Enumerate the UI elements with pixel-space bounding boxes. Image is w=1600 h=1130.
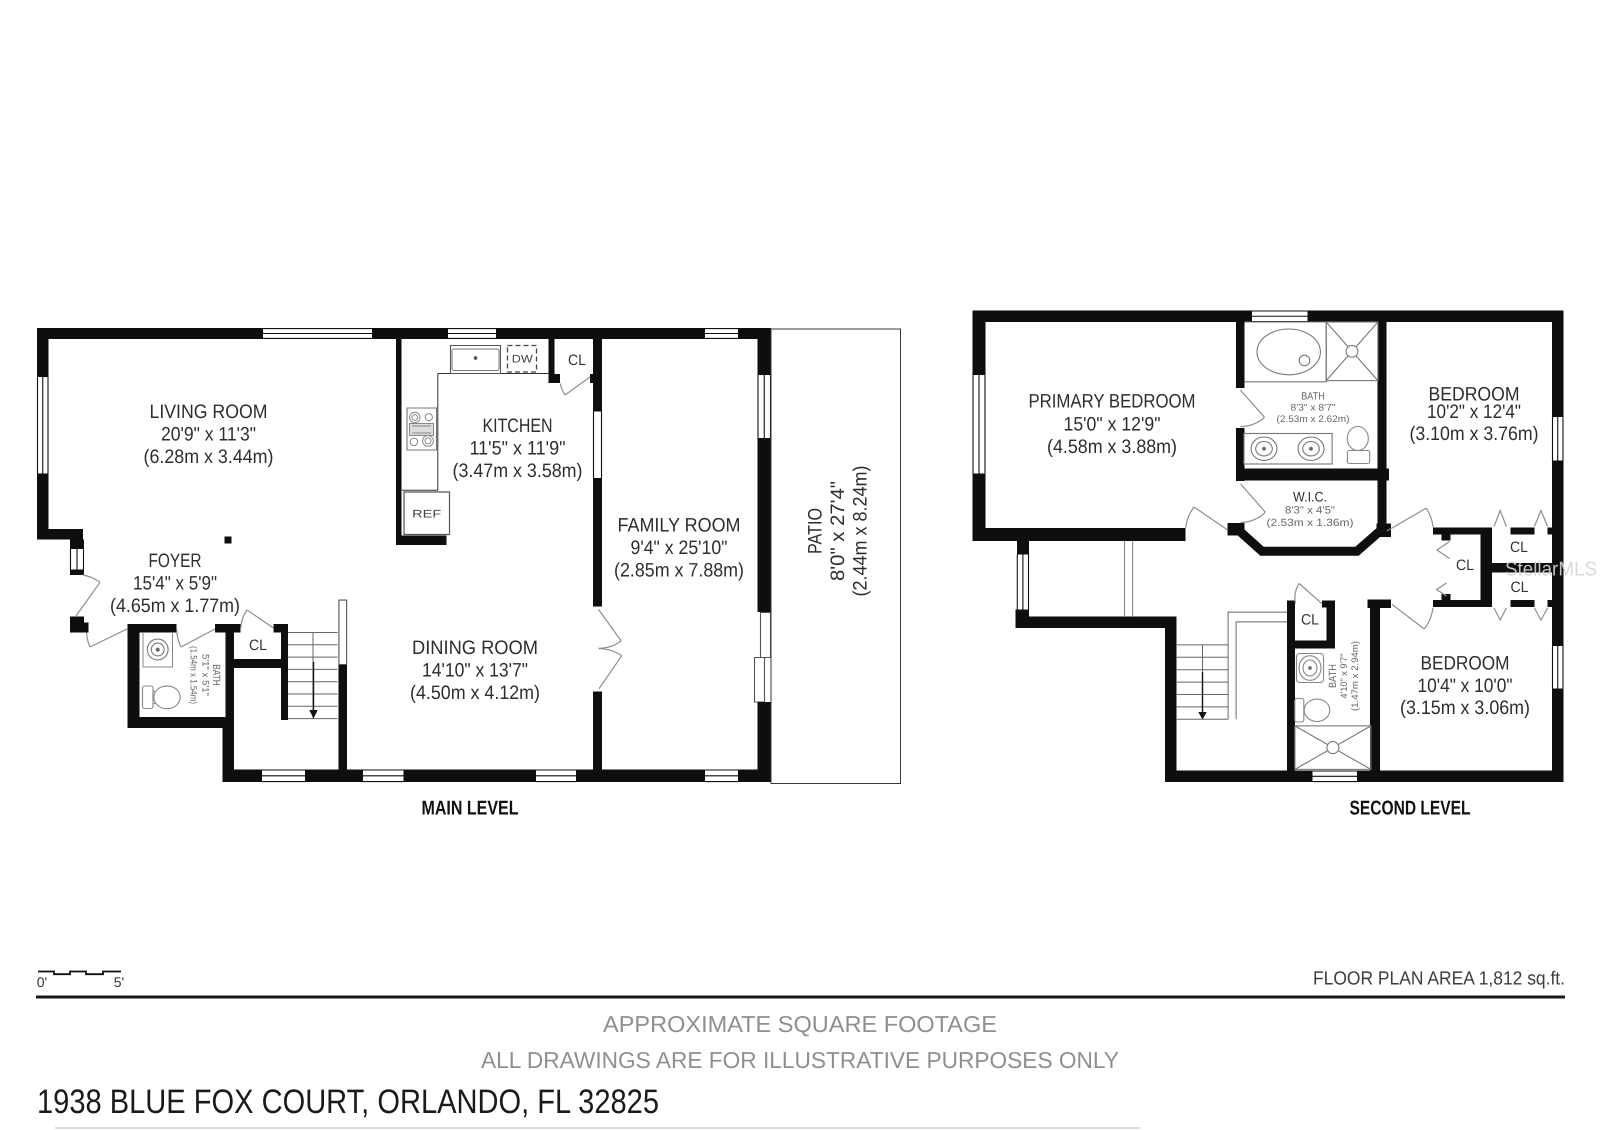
svg-text:PRIMARY BEDROOM: PRIMARY BEDROOM <box>1029 391 1196 413</box>
svg-text:SECOND LEVEL: SECOND LEVEL <box>1350 798 1471 820</box>
svg-text:LIVING ROOM: LIVING ROOM <box>150 401 268 423</box>
svg-text:(1.54m x 1.54m): (1.54m x 1.54m) <box>188 646 199 704</box>
svg-text:8'0" x 27'4": 8'0" x 27'4" <box>827 481 849 581</box>
svg-text:8'3" x 4'5": 8'3" x 4'5" <box>1285 505 1335 517</box>
svg-text:(2.53m x 1.36m): (2.53m x 1.36m) <box>1267 517 1354 529</box>
svg-text:FAMILY ROOM: FAMILY ROOM <box>618 515 741 537</box>
svg-text:DINING ROOM: DINING ROOM <box>412 637 538 659</box>
svg-text:(2.44m x 8.24m): (2.44m x 8.24m) <box>850 466 872 597</box>
svg-text:(6.28m x 3.44m): (6.28m x 3.44m) <box>144 446 274 468</box>
svg-text:15'0" x 12'9": 15'0" x 12'9" <box>1064 414 1161 436</box>
svg-text:10'4" x 10'0": 10'4" x 10'0" <box>1418 675 1513 697</box>
svg-text:APPROXIMATE SQUARE FOOTAGE: APPROXIMATE SQUARE FOOTAGE <box>603 1011 997 1037</box>
svg-text:14'10" x 13'7": 14'10" x 13'7" <box>422 660 528 682</box>
svg-text:15'4" x 5'9": 15'4" x 5'9" <box>133 573 217 595</box>
svg-text:(2.53m x 2.62m): (2.53m x 2.62m) <box>1277 414 1350 425</box>
svg-text:MAIN LEVEL: MAIN LEVEL <box>422 798 519 820</box>
svg-text:CL: CL <box>1301 612 1319 629</box>
svg-text:ALL DRAWINGS ARE FOR ILLUSTRAT: ALL DRAWINGS ARE FOR ILLUSTRATIVE PURPOS… <box>481 1047 1119 1073</box>
svg-text:11'5" x 11'9": 11'5" x 11'9" <box>470 438 566 460</box>
svg-text:BATH: BATH <box>1301 391 1325 403</box>
svg-text:20'9" x 11'3": 20'9" x 11'3" <box>161 424 256 446</box>
svg-text:W.I.C.: W.I.C. <box>1293 489 1327 505</box>
svg-text:FLOOR PLAN AREA 1,812 sq.ft.: FLOOR PLAN AREA 1,812 sq.ft. <box>1313 969 1565 990</box>
svg-text:(1.47m x 2.94m): (1.47m x 2.94m) <box>1350 641 1361 711</box>
svg-text:8'3" x 8'7": 8'3" x 8'7" <box>1291 403 1336 414</box>
svg-text:(3.47m x 3.58m): (3.47m x 3.58m) <box>453 460 583 482</box>
svg-text:0': 0' <box>37 974 47 990</box>
svg-text:(2.85m x 7.88m): (2.85m x 7.88m) <box>614 560 744 582</box>
svg-text:10'2" x 12'4": 10'2" x 12'4" <box>1427 401 1521 423</box>
svg-text:4'10" x 9'7": 4'10" x 9'7" <box>1339 654 1350 699</box>
svg-text:CL: CL <box>568 352 586 369</box>
svg-text:1938 BLUE FOX COURT, ORLANDO,: 1938 BLUE FOX COURT, ORLANDO, FL 32825 <box>37 1083 659 1121</box>
svg-text:FOYER: FOYER <box>149 550 202 572</box>
svg-text:(4.50m x 4.12m): (4.50m x 4.12m) <box>410 682 540 704</box>
svg-text:DW: DW <box>512 354 534 366</box>
svg-text:CL: CL <box>1510 539 1528 556</box>
svg-text:(4.65m x 1.77m): (4.65m x 1.77m) <box>110 595 240 617</box>
svg-text:KITCHEN: KITCHEN <box>483 415 553 437</box>
svg-text:CL: CL <box>1511 579 1529 596</box>
svg-text:5'1" x 5'1": 5'1" x 5'1" <box>200 654 211 696</box>
svg-text:PATIO: PATIO <box>805 508 827 554</box>
svg-text:CL: CL <box>249 637 267 654</box>
svg-text:BATH: BATH <box>210 664 222 686</box>
svg-text:9'4" x 25'10": 9'4" x 25'10" <box>631 537 728 559</box>
svg-text:(3.15m x 3.06m): (3.15m x 3.06m) <box>1400 697 1530 719</box>
svg-text:(3.10m x 3.76m): (3.10m x 3.76m) <box>1410 423 1539 445</box>
svg-text:(4.58m x 3.88m): (4.58m x 3.88m) <box>1047 436 1177 458</box>
svg-text:CL: CL <box>1456 557 1474 574</box>
svg-text:REF: REF <box>412 508 441 520</box>
svg-text:BEDROOM: BEDROOM <box>1421 653 1510 675</box>
svg-text:BATH: BATH <box>1327 664 1339 688</box>
svg-text:5': 5' <box>114 974 124 990</box>
svg-text:StellarMLS: StellarMLS <box>1505 559 1597 581</box>
